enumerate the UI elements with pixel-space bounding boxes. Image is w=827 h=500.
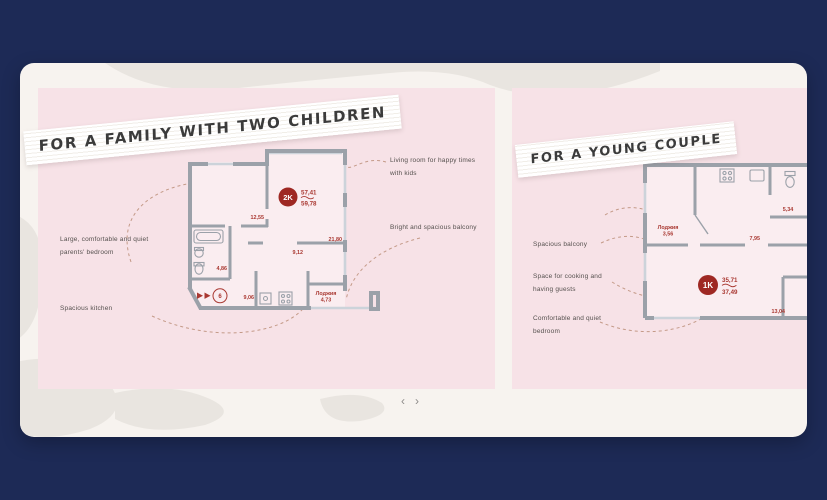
room-area-loggia: 3,56 xyxy=(663,232,674,238)
annotation-bright-balcony: Bright and spacious balcony xyxy=(390,221,510,234)
annotation-parents-bedroom: Large, comfortable and quiet parents' be… xyxy=(60,233,172,259)
slide-background: 12,55 21,80 9,12 4,86 9,06 Лоджия 4,73 6… xyxy=(0,0,827,500)
area-total-value: 59,78 xyxy=(301,201,317,208)
room-area-hall: 9,12 xyxy=(293,250,304,256)
loggia-name: Лоджия xyxy=(316,291,337,297)
family-floor-plan: 12,55 21,80 9,12 4,86 9,06 Лоджия 4,73 6… xyxy=(185,147,395,315)
couple-floor-plan: Лоджия 3,56 5,34 7,95 13,04 1K 35,71 37,… xyxy=(640,155,807,325)
badge-label: 2K xyxy=(283,193,293,202)
room-area-kitchen: 7,95 xyxy=(750,236,761,242)
carousel-prev-button[interactable]: ‹ xyxy=(399,393,407,409)
annotation-living-room: Living room for happy times with kids xyxy=(390,154,488,180)
room-area-bath: 5,34 xyxy=(783,207,794,213)
presentation-card: 12,55 21,80 9,12 4,86 9,06 Лоджия 4,73 6… xyxy=(20,63,807,437)
annotation-spacious-balcony: Spacious balcony xyxy=(533,238,643,251)
room-area-loggia: 4,73 xyxy=(321,298,332,304)
area-living-value: 57,41 xyxy=(301,190,317,197)
loggia-name: Лоджия xyxy=(658,225,679,231)
room-area-bath: 4,86 xyxy=(217,266,228,272)
room-area-kitchen: 9,06 xyxy=(244,295,255,301)
annotation-cooking-space: Space for cooking and having guests xyxy=(533,270,615,296)
area-living-value: 35,71 xyxy=(722,277,738,284)
carousel-next-button[interactable]: › xyxy=(413,393,421,409)
room-area-bedroom: 13,04 xyxy=(772,309,786,315)
badge-label: 1K xyxy=(703,281,713,290)
area-total-value: 37,49 xyxy=(722,289,738,296)
annotation-spacious-kitchen: Spacious kitchen xyxy=(60,302,180,315)
room-area-bedroom: 12,55 xyxy=(251,215,265,221)
annotation-quiet-bedroom: Comfortable and quiet bedroom xyxy=(533,312,615,338)
room-area-living: 21,80 xyxy=(329,237,343,243)
